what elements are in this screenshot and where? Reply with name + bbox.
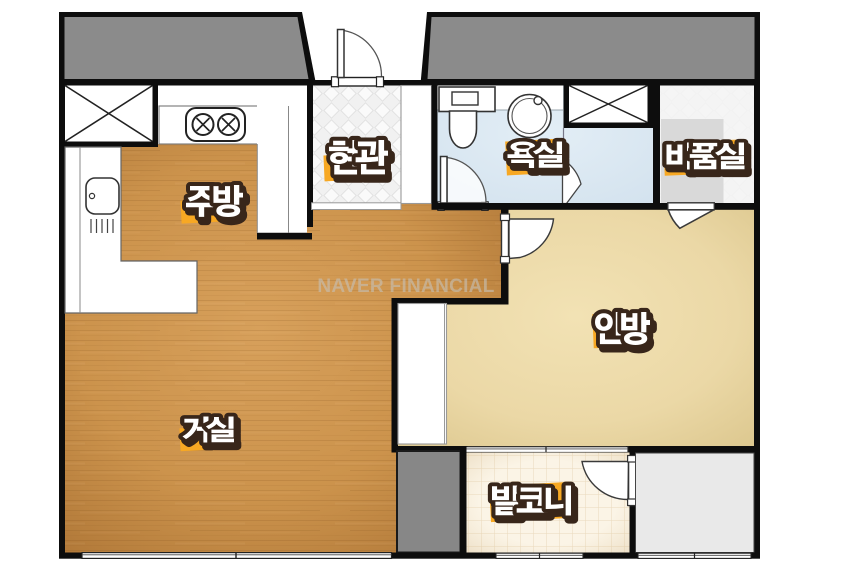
- svg-text:NAVER FINANCIAL: NAVER FINANCIAL: [317, 276, 494, 297]
